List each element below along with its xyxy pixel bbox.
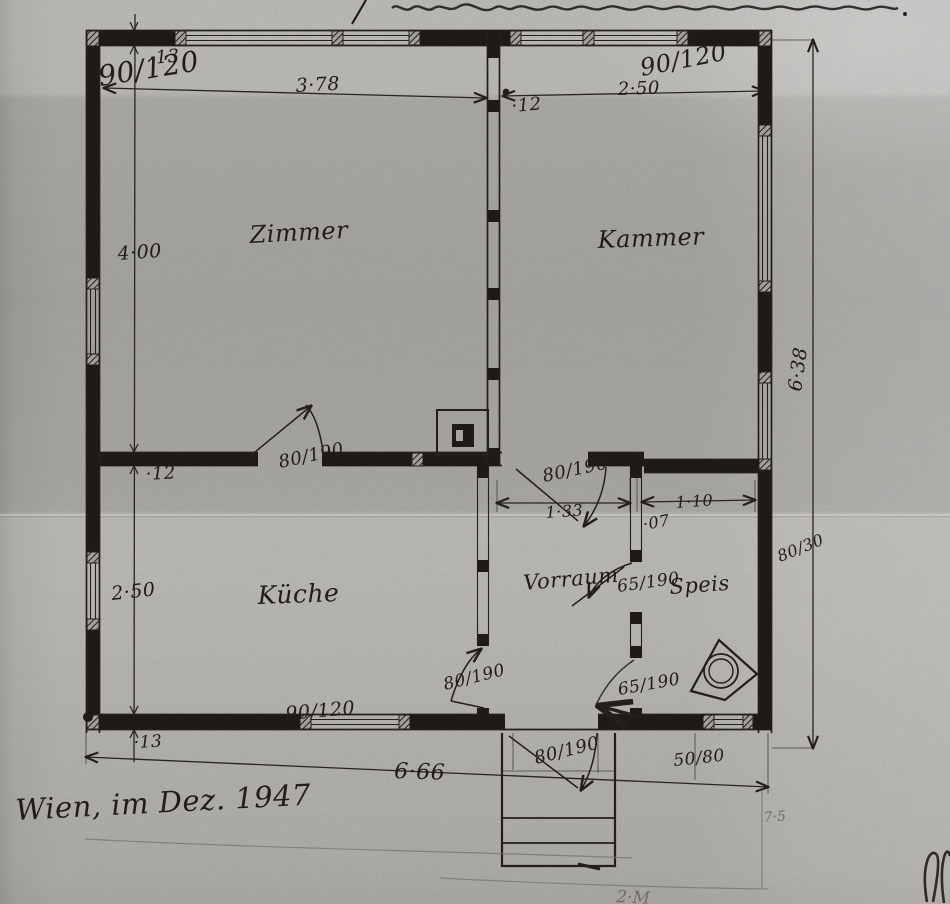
- floor-plan-drawing: 90/120 3·78 ·13 ·12 90/120 2·50 Zimmer K…: [0, 0, 950, 904]
- scanned-floor-plan: 90/120 3·78 ·13 ·12 90/120 2·50 Zimmer K…: [0, 0, 950, 904]
- scan-grain: [0, 0, 950, 904]
